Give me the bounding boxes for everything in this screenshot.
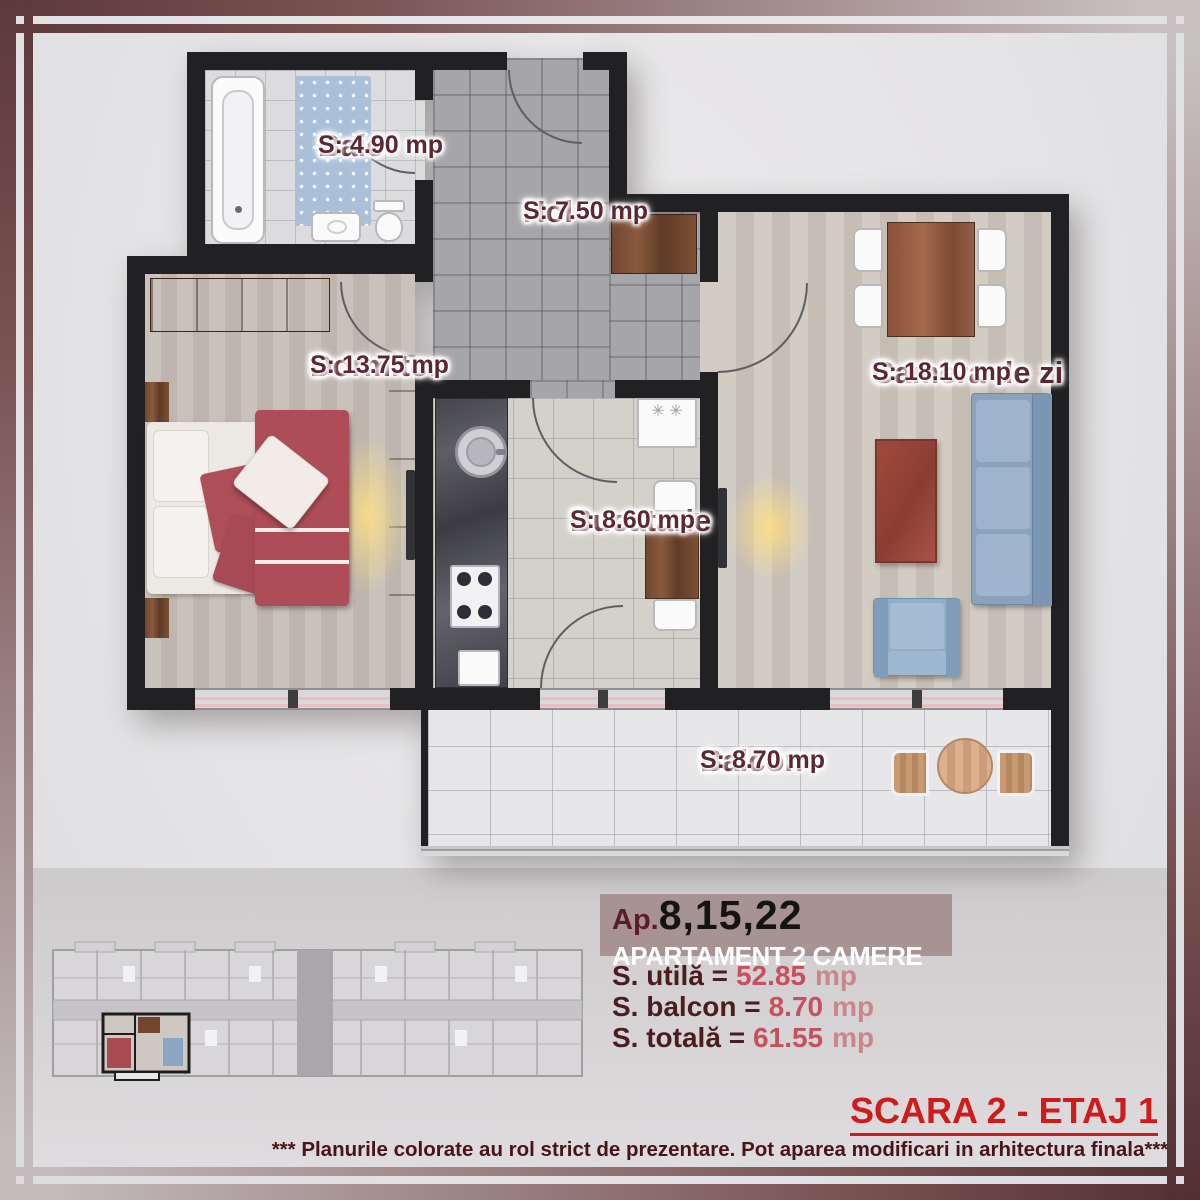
frame-band [24, 0, 33, 1200]
metric-unit: mp [832, 1022, 874, 1053]
highlighted-apartment [103, 1014, 189, 1080]
kitchen-sink [455, 426, 507, 478]
wall-segment [415, 274, 433, 282]
wall-segment [615, 380, 700, 398]
nightstand [145, 598, 169, 638]
apartment-numbers: 8,15,22 [659, 892, 803, 938]
room-area: S: 18.10 mp [872, 357, 1011, 388]
balcony-edge [421, 846, 1069, 856]
wall-segment [415, 362, 433, 688]
metric-unit: mp [832, 991, 874, 1022]
wall-segment [700, 212, 718, 282]
metric-label: S. balcon = [612, 991, 761, 1022]
wall-segment [665, 688, 830, 710]
dining-chair [853, 228, 883, 272]
metric-value: 52.85 [736, 960, 806, 991]
wall-segment [415, 180, 433, 256]
dining-chair [977, 284, 1007, 328]
apartment-prefix: Ap. [612, 904, 659, 936]
frame-band [0, 0, 16, 1200]
room-area: S: 13.75 mp [310, 350, 449, 381]
bathtub [211, 76, 265, 244]
room-area: S: 4.90 mp [318, 130, 443, 161]
wall-segment [187, 244, 433, 258]
armchair [873, 598, 959, 676]
wall-segment [1051, 702, 1069, 854]
wall-segment [390, 688, 540, 710]
bedroom-wardrobe [150, 278, 330, 332]
dining-chair [853, 284, 883, 328]
balcony-chair [891, 750, 929, 796]
bathroom-sink [311, 212, 361, 242]
stove [450, 565, 500, 628]
metric-label: S. totală = [612, 1022, 745, 1053]
wall-segment [187, 52, 205, 258]
stair-floor-title: SCARA 2 - ETAJ 1 [850, 1090, 1158, 1136]
wall-segment [609, 52, 627, 212]
apartment-floor-plan: ✳ ✳ Baie S: 4.90 mp Hol S: 7.50 mp Dormi… [125, 50, 1075, 865]
sofa [971, 393, 1051, 605]
threshold-living [700, 282, 718, 372]
metric-value: 61.55 [753, 1022, 823, 1053]
dining-table [887, 222, 975, 337]
threshold-kitchen [530, 380, 615, 398]
wall-segment [187, 52, 507, 70]
disclaimer-text: *** Planurile colorate au rol strict de … [230, 1138, 1200, 1162]
toilet [371, 200, 407, 244]
balcony-chair [997, 750, 1035, 796]
apartment-number-line: Ap.8,15,22 [612, 896, 952, 944]
wall-lamp-glow [728, 475, 813, 580]
bedroom-tv [406, 470, 415, 560]
wall-segment [1051, 194, 1069, 710]
kitchen-chair [653, 599, 697, 631]
frame-band [0, 0, 1200, 16]
dining-chair [977, 228, 1007, 272]
room-area: S: 7.50 mp [523, 196, 648, 227]
balcony-table [937, 738, 993, 794]
wall-segment [421, 702, 428, 852]
floor-plan-page: { "plan": { "rooms": [ {"id": "baie", "n… [0, 0, 1200, 1200]
wall-segment [415, 70, 433, 100]
living-tv [718, 488, 727, 568]
wall-segment [433, 380, 530, 398]
fridge: ✳ ✳ [637, 398, 697, 448]
metric-row: S. totală =61.55mp [612, 1022, 874, 1053]
surface-metrics: S. utilă =52.85mp S. balcon =8.70mp S. t… [612, 960, 874, 1053]
coffee-table [875, 439, 937, 563]
window-dormitor [195, 688, 390, 710]
metric-row: S. utilă =52.85mp [612, 960, 874, 991]
balcony-door-window [540, 688, 665, 710]
frame-band [0, 1167, 1200, 1176]
room-area: S: 8.70 mp [700, 745, 825, 776]
wall-segment [127, 256, 433, 274]
building-level-thumbnail [45, 938, 590, 1090]
metric-row: S. balcon =8.70mp [612, 991, 874, 1022]
window-camera-de-zi [830, 688, 1003, 710]
frame-band [0, 24, 1200, 33]
frame-band [0, 1184, 1200, 1200]
wall-segment [127, 256, 145, 710]
wall-segment [609, 194, 1069, 212]
metric-label: S. utilă = [612, 960, 728, 991]
room-area: S: 8.60 mp [570, 505, 695, 536]
metric-value: 8.70 [769, 991, 824, 1022]
nightstand [145, 382, 169, 422]
frame-band [1184, 0, 1200, 1200]
kitchen-cabinet [458, 650, 500, 686]
frame-band [1167, 0, 1176, 1200]
metric-unit: mp [815, 960, 857, 991]
apartment-info-header: Ap.8,15,22 APARTAMENT 2 CAMERE [600, 894, 952, 956]
